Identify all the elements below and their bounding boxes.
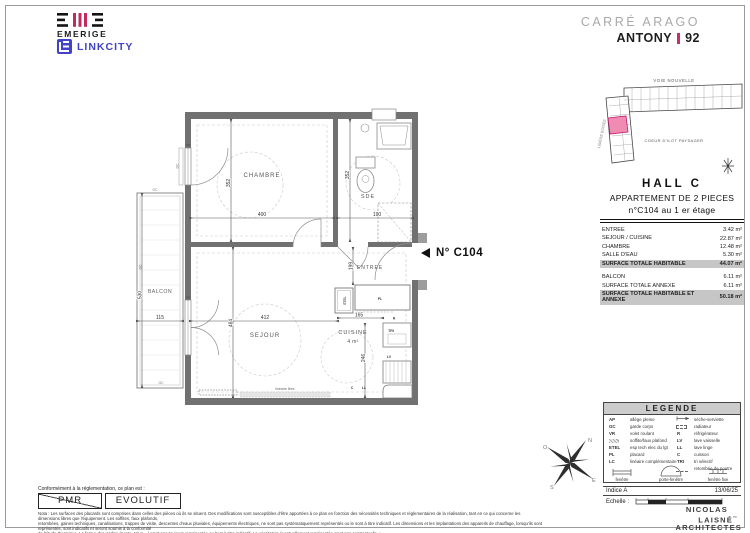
dim-sde-height: 352	[345, 171, 351, 180]
legend-label: sèche-serviette	[694, 417, 724, 422]
legend-label: garde corps	[630, 424, 653, 429]
room-label-entree: ENTREE	[357, 265, 383, 271]
legend-abbr: PL	[609, 452, 615, 457]
legend-abbr: LL	[677, 445, 682, 450]
legend-towel-dryer-icon	[676, 416, 690, 422]
highlighted-unit	[608, 116, 628, 134]
legend-label: soffite/faux plafond	[630, 438, 667, 443]
surface-row: SALLE D'EAU5.30 m²	[600, 251, 744, 259]
legend-title: LEGENDE	[604, 403, 740, 415]
surface-row: SEJOUR / CUISINE22.87 m²	[600, 234, 744, 242]
row-label: SURFACE TOTALE HABITABLE	[602, 261, 686, 267]
dim-balcon-height: 530	[138, 291, 144, 300]
linkcity-icon	[57, 39, 72, 54]
duct-shaft	[372, 109, 396, 120]
dim-cuisine-height: 246	[361, 354, 367, 363]
emerige-wordmark: EMERIGE	[57, 29, 107, 39]
nota-line: retombées, gaines techniques, canalisati…	[38, 521, 543, 531]
revision-index: Indice A	[606, 488, 627, 494]
evolutif-badge: EVOLUTIF	[105, 493, 181, 509]
legend-abbr: LC	[609, 459, 615, 464]
room-label-balcon: BALCON	[148, 289, 172, 295]
legend-label: placard	[630, 452, 644, 457]
tag-placard: PL	[378, 297, 383, 301]
tag-etel: ETEL	[343, 296, 347, 304]
surface-row: SURFACE TOTALE ANNEXE6.11 m²	[600, 282, 744, 290]
floor-plan: 400 352 190 352 199 412 484 115 530 165 …	[125, 95, 435, 425]
unit-info-block: HALL C APPARTEMENT DE 2 PIECES n°C104 au…	[600, 178, 744, 305]
row-label: SEJOUR / CUISINE	[602, 235, 652, 241]
architect-line: NICOLAS	[620, 506, 742, 514]
tag-c: C	[351, 386, 354, 390]
legend-label: tri sélectif	[694, 459, 713, 464]
legend-french-door-label: porte-fenêtre	[651, 477, 691, 482]
surface-total-row: SURFACE TOTALE HABITABLE44.07 m²	[600, 260, 744, 268]
bathroom-fixtures	[356, 123, 411, 242]
tag-ll: LL	[362, 386, 367, 390]
unit-marker: N° C104	[421, 247, 483, 259]
row-value: 50.18 m²	[720, 294, 742, 300]
site-map-north-icon	[722, 158, 734, 174]
row-value: 3.42 m²	[723, 227, 742, 233]
dim-sejour-height: 484	[229, 319, 235, 328]
surface-row: CHAMBRE12.48 m²	[600, 243, 744, 251]
dim-chambre-width: 400	[258, 212, 267, 218]
compass-e: E	[592, 478, 596, 484]
row-value: 6.11 m²	[723, 283, 742, 289]
site-map-street-label: VOIE NOUVELLE	[653, 78, 694, 83]
project-name: CARRÉ ARAGO	[581, 15, 700, 29]
project-city: ANTONY 92	[581, 31, 700, 45]
tag-gc-bottom: GC	[158, 381, 164, 385]
room-label-sde: SDE	[361, 194, 375, 200]
compass-o: O	[543, 445, 548, 451]
legend-label: lave linge	[694, 445, 713, 450]
nota-text: Nota : Les surfaces des placards sont co…	[38, 511, 543, 533]
legend-label: cuisson	[694, 452, 709, 457]
revision-row: Indice A 13/06/25	[603, 486, 741, 496]
architect-line: LAISNÉ™	[620, 514, 742, 524]
legend-label: esp tech elec du lgt	[630, 445, 668, 450]
legend-abbr: ETEL	[609, 445, 620, 450]
row-label: SALLE D'EAU	[602, 252, 638, 258]
row-value: 44.07 m²	[720, 261, 742, 267]
scale-label: Echelle :	[606, 499, 629, 505]
legend-label: volet roulant	[630, 431, 654, 436]
row-value: 22.87 m²	[720, 236, 742, 242]
department-number: 92	[685, 31, 700, 45]
revision-date: 13/06/25	[715, 488, 738, 494]
legend-abbr: VR	[609, 431, 615, 436]
legend-fixed-window-icon	[708, 466, 728, 477]
row-label: BALCON	[602, 274, 625, 280]
city-name: ANTONY	[617, 31, 673, 45]
linkcity-logo: LINKCITY	[57, 39, 133, 54]
unit-marker-label: N° C104	[436, 247, 483, 259]
legend-radiator-icon	[676, 425, 687, 430]
project-header: CARRÉ ARAGO ANTONY 92	[581, 15, 700, 45]
legend-label: radiateur	[694, 424, 711, 429]
emerige-logo-icon	[57, 13, 103, 28]
legend-fixed-window-label: fenêtre fixe	[698, 477, 738, 482]
apartment-number: n°C104 au 1 er étage	[600, 205, 744, 215]
tag-r: R	[393, 317, 396, 321]
room-label-cuisine: CUISINE	[338, 330, 367, 336]
row-value: 12.48 m²	[720, 244, 742, 250]
dim-sde-width: 190	[373, 212, 382, 218]
dim-balcon-width: 115	[156, 315, 164, 321]
tag-gc-left: GC	[139, 264, 143, 270]
dim-chambre-height: 352	[226, 179, 232, 188]
legend-abbr: LV	[677, 438, 682, 443]
surface-grand-total-row: SURFACE TOTALE HABITABLE ET ANNEXE50.18 …	[600, 290, 744, 305]
apartment-type: APPARTEMENT DE 2 PIECES	[600, 193, 744, 203]
dim-cuisine-width: 165	[355, 313, 364, 319]
dim-sejour-width: 412	[261, 315, 270, 321]
legend-window-icon	[612, 466, 632, 477]
row-value: 6.11 m²	[723, 274, 742, 280]
pmr-badge-struck: PMR	[38, 493, 102, 509]
compass-n: N	[588, 438, 592, 444]
legend-window-label: fenêtre	[602, 477, 642, 482]
architect-line: ARCHITECTES	[620, 524, 742, 532]
dim-entree: 199	[349, 262, 355, 271]
tag-lv: LV	[387, 355, 392, 359]
linkcity-wordmark: LINKCITY	[77, 41, 133, 53]
conformity-note: Conformément à la réglementation, ce pla…	[38, 486, 145, 492]
compass-s: S	[550, 485, 554, 491]
legend-abbr: R	[677, 431, 680, 436]
tag-tri: TRI	[388, 329, 394, 333]
site-map-left-label: LISIÈRE BOISÉE	[596, 118, 607, 149]
trademark-icon: ™	[733, 515, 737, 520]
site-map: VOIE NOUVELLE LISIÈRE BOISÉE COEUR D'ILO…	[596, 72, 748, 180]
pink-separator	[677, 33, 680, 44]
radiator-icon	[199, 390, 330, 397]
door-swings	[191, 148, 412, 355]
tag-gc-window: GC	[176, 163, 180, 169]
row-label: SURFACE TOTALE ANNEXE	[602, 283, 675, 289]
row-value: 5.30 m²	[723, 252, 742, 258]
legend-label: réfrigérateur	[694, 431, 718, 436]
architect-signature: NICOLAS LAISNÉ™ ARCHITECTES	[620, 506, 742, 531]
row-label: SURFACE TOTALE HABITABLE ET ANNEXE	[602, 291, 702, 304]
tag-gc-top: GC	[152, 188, 158, 192]
surface-row: ENTREE3.42 m²	[600, 226, 744, 234]
title-rule	[600, 219, 744, 223]
row-label: CHAMBRE	[602, 244, 630, 250]
legend-abbr: GC	[609, 424, 616, 429]
room-label-sejour: SEJOUR	[250, 333, 280, 339]
legend-box: LEGENDE AP allège pleine GC garde corps …	[603, 402, 741, 483]
legend-label: allège pleine	[630, 417, 655, 422]
common-wall-stubs	[418, 233, 427, 290]
legend-soffite-swatch	[609, 439, 619, 444]
room-label-chambre: CHAMBRE	[243, 173, 280, 179]
conformity-badges: PMR EVOLUTIF	[38, 493, 181, 509]
tag-lineaire-libre: linéaire libre	[275, 387, 294, 391]
plan-sheet: EMERIGE LINKCITY CARRÉ ARAGO ANTONY 92 V…	[0, 0, 750, 533]
legend-abbr: C	[677, 452, 680, 457]
room-label-cuisine-area: 4 m²	[347, 339, 358, 345]
nota-line: Nota : Les surfaces des placards sont co…	[38, 511, 543, 521]
surface-row: BALCON6.11 m²	[600, 273, 744, 281]
kitchen-fixtures	[383, 323, 412, 398]
entry-arrow-icon	[421, 248, 430, 258]
legend-abbr: AP	[609, 417, 615, 422]
row-label: ENTREE	[602, 227, 625, 233]
compass-rose-icon: N E S O	[530, 418, 610, 508]
hall-title: HALL C	[600, 178, 744, 190]
legend-french-door-icon	[660, 464, 682, 477]
site-map-courtyard-label: COEUR D'ILOT PAYSAGER	[645, 138, 704, 143]
legend-label: lave vaisselle	[694, 438, 720, 443]
